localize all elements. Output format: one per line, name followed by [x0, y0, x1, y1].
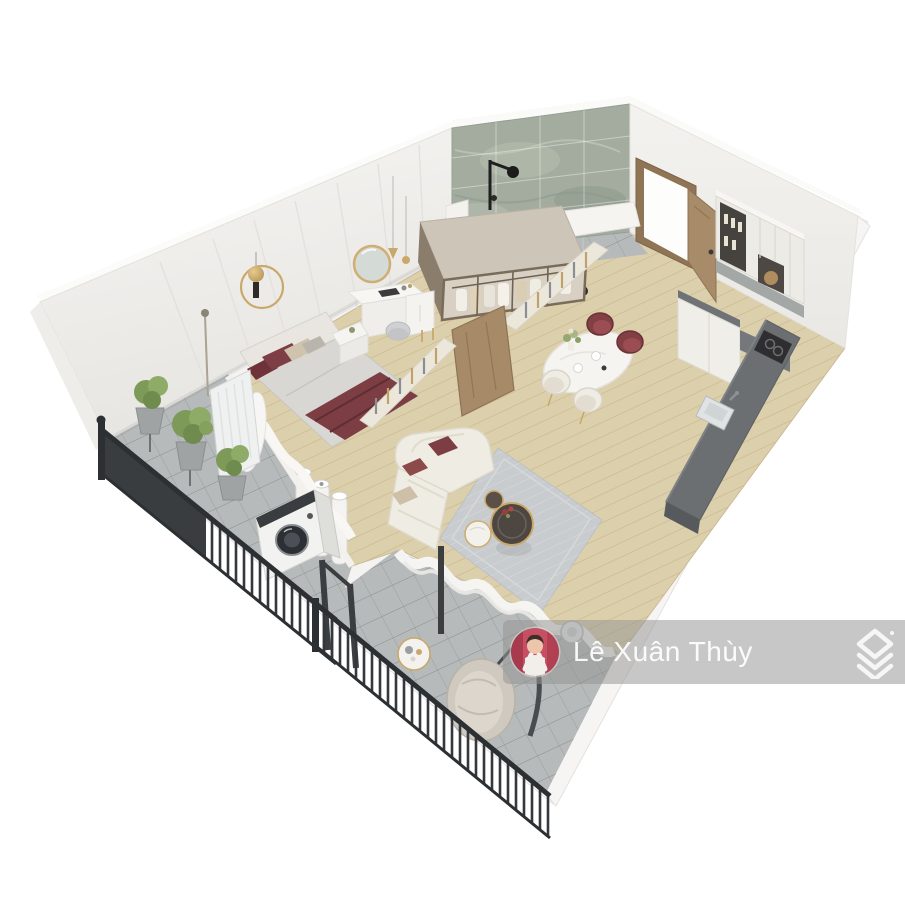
vanity-mirror	[354, 246, 390, 282]
apartment-render	[0, 0, 905, 908]
curtain-pole	[438, 546, 444, 634]
watermark-bar: Lê Xuân Thùy	[503, 620, 905, 684]
watermark-name: Lê Xuân Thùy	[573, 636, 753, 668]
watermark-avatar	[511, 628, 559, 676]
wardrobe-with-clothes	[418, 206, 586, 320]
avatar-portrait	[511, 628, 559, 676]
small-plant	[349, 327, 355, 333]
balcony-side-table	[398, 638, 430, 670]
door-handle	[709, 250, 714, 255]
vanity-stool	[386, 322, 410, 340]
brand-logo-icon	[851, 625, 899, 679]
screenshot-root: Lê Xuân Thùy	[0, 0, 905, 908]
